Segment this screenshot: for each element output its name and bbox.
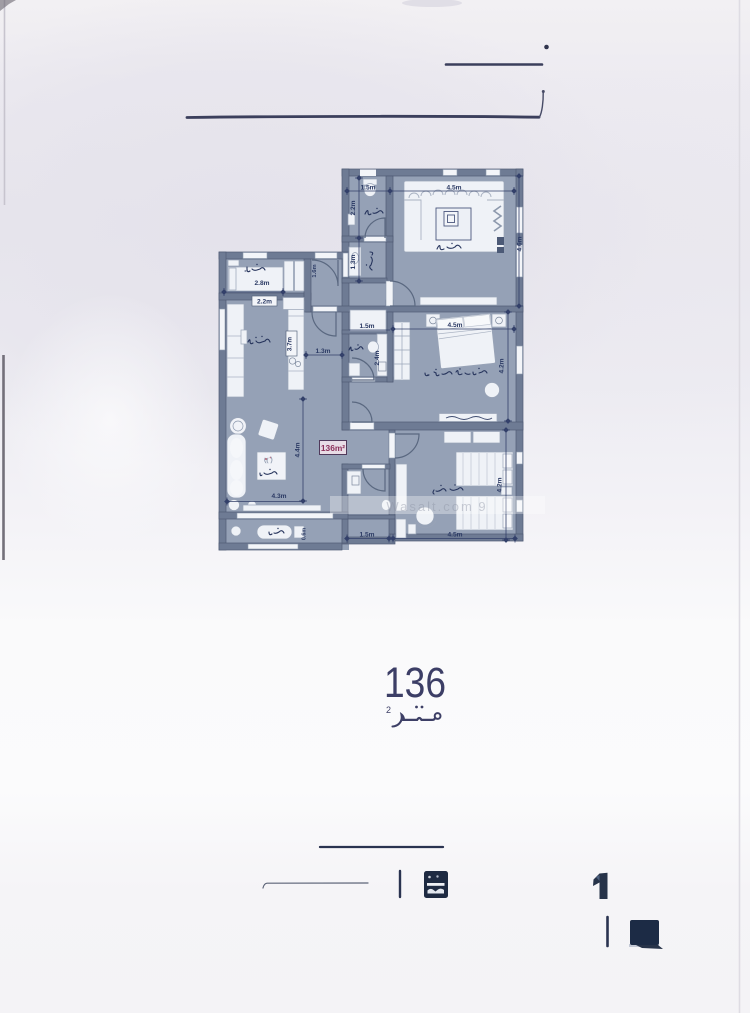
svg-text:Wasalt.com 9: Wasalt.com 9 [386,499,487,514]
svg-text:4.5m: 4.5m [447,532,462,539]
svg-text:136: 136 [384,659,446,707]
svg-text:136m²: 136m² [321,443,345,453]
svg-text:1.5m: 1.5m [360,185,375,192]
svg-text:2: 2 [386,705,391,715]
svg-text:1.3m: 1.3m [315,348,330,355]
svg-text:4.4m: 4.4m [295,442,302,457]
svg-text:2.2m: 2.2m [257,299,272,306]
svg-text:0.6m: 0.6m [302,528,308,540]
svg-text:2.8m: 2.8m [254,280,269,287]
svg-text:4.6m: 4.6m [517,236,524,251]
svg-text:4.2m: 4.2m [499,358,506,373]
svg-text:4.2m: 4.2m [497,477,504,492]
svg-text:4.3m: 4.3m [271,493,286,500]
svg-text:3.7m: 3.7m [287,336,294,351]
svg-text:1.5m: 1.5m [359,323,374,330]
svg-text:1.3m: 1.3m [350,254,357,269]
svg-text:4.5m: 4.5m [447,322,462,329]
svg-text:2.4m: 2.4m [374,350,381,365]
svg-text:4.5m: 4.5m [446,185,461,192]
svg-text:1.5m: 1.5m [359,532,374,539]
svg-text:1.6m: 1.6m [312,264,318,277]
svg-text:2.2m: 2.2m [350,200,357,215]
